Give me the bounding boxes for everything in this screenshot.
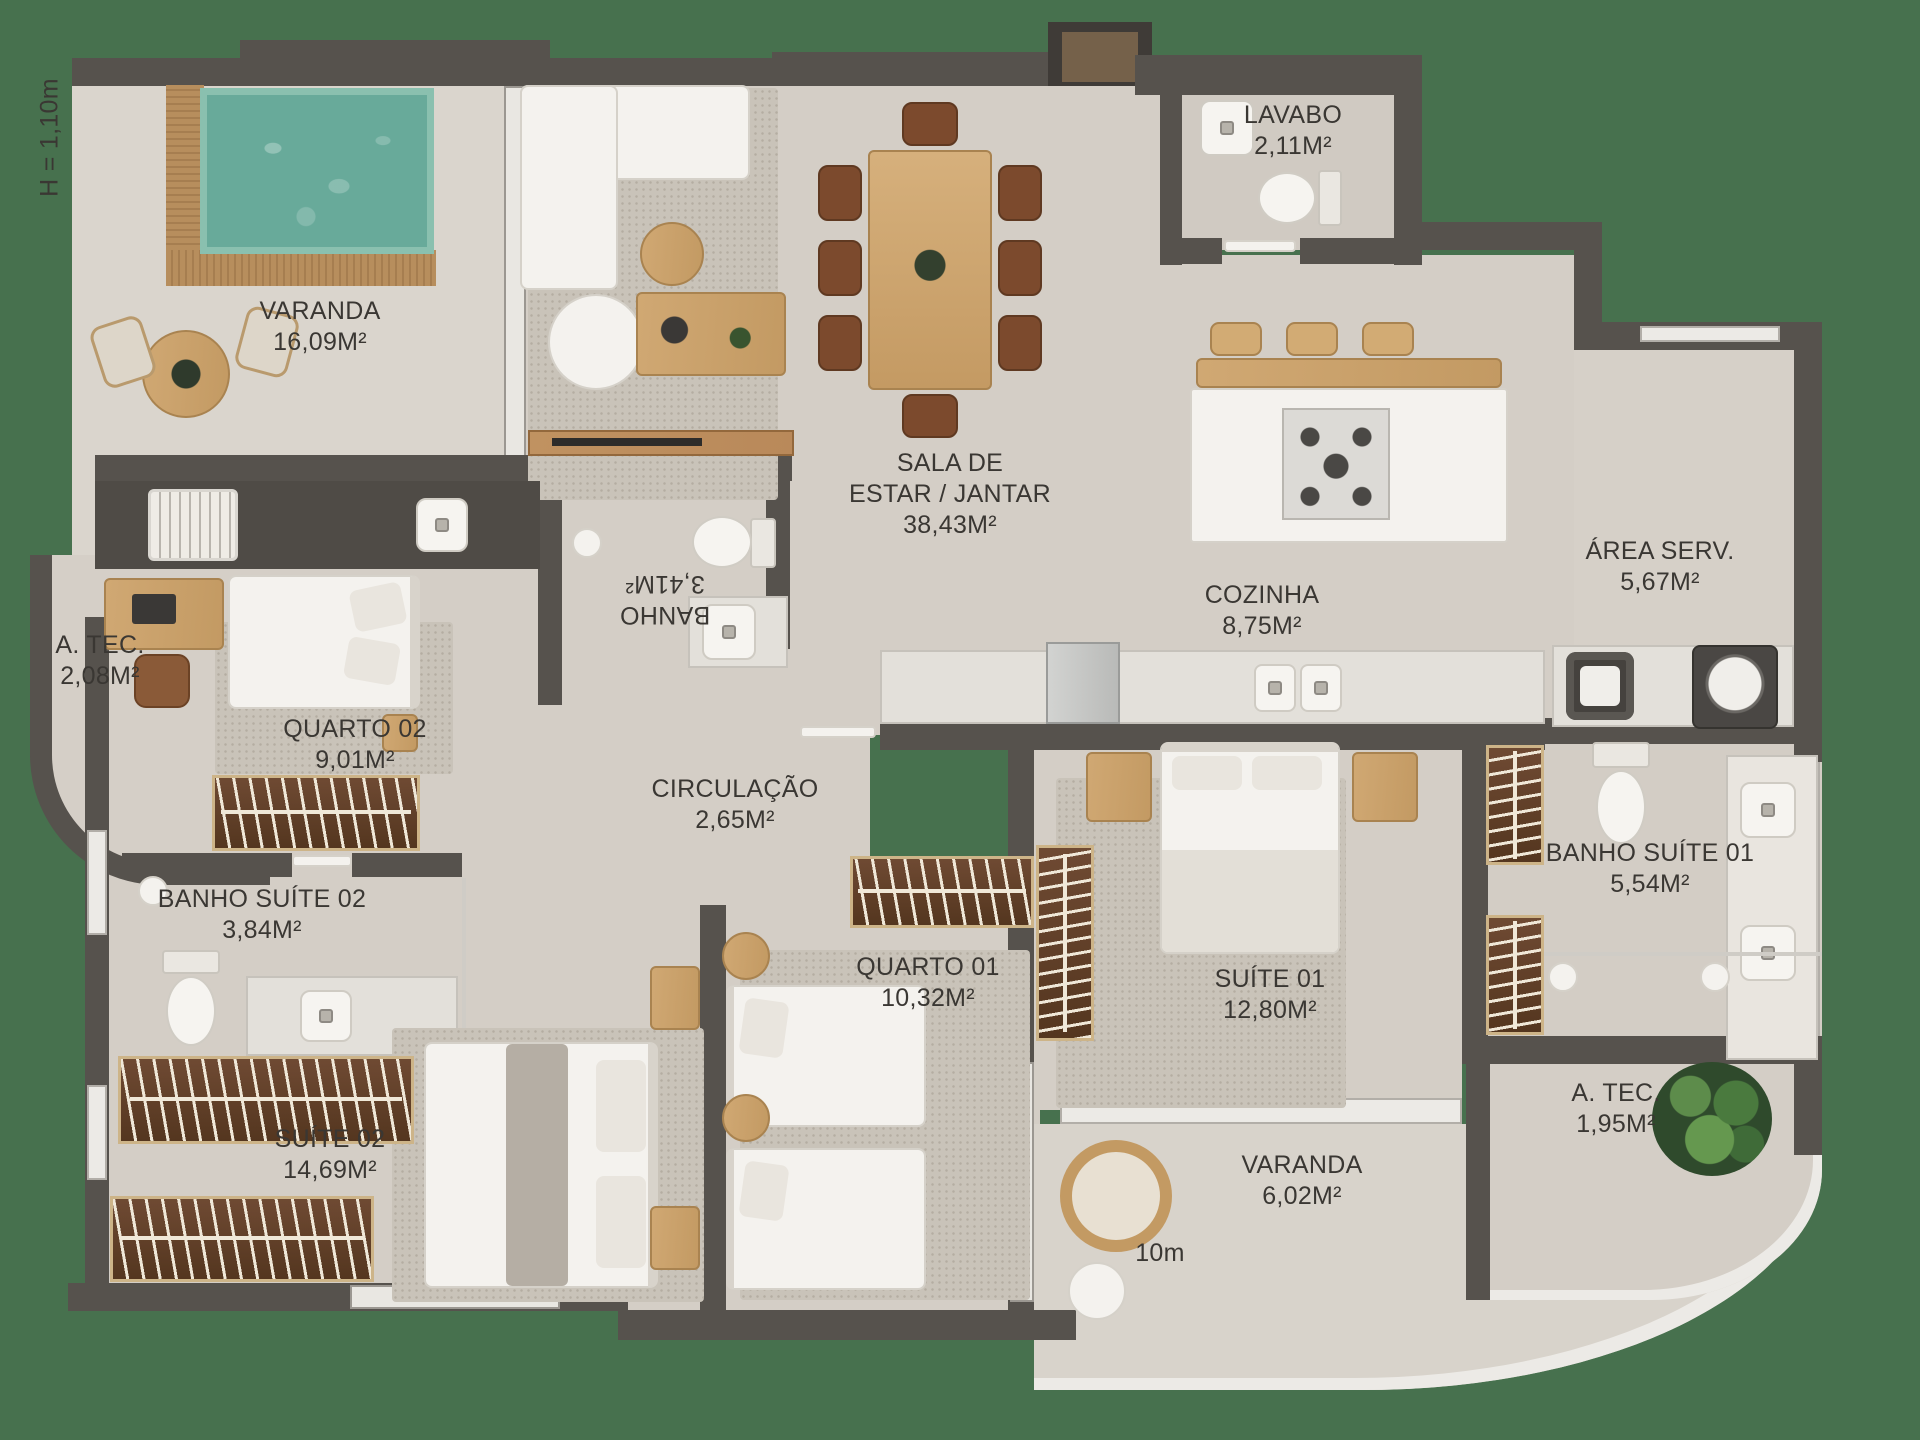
room-label-banho-suite02: BANHO SUÍTE 02 3,84M² — [112, 884, 412, 946]
suite01-pillow — [1252, 756, 1322, 790]
room-name: QUARTO 02 — [205, 714, 505, 745]
sofa-chaise — [520, 85, 618, 290]
room-name: SUÍTE 02 — [180, 1124, 480, 1155]
fridge — [1046, 642, 1120, 724]
niche-sink — [416, 498, 468, 552]
washing-machine — [1692, 645, 1778, 729]
room-area: 1,95M² — [1466, 1109, 1766, 1140]
room-label-atec-right: A. TEC. 1,95M² — [1466, 1078, 1766, 1140]
room-area: 5,54M² — [1500, 869, 1800, 900]
suite02-window-a — [87, 830, 107, 935]
room-area: 12,80M² — [1120, 995, 1420, 1026]
banho01-toilet-bowl — [1596, 770, 1646, 844]
banho02-door-leaf — [292, 855, 352, 867]
room-area: 14,69M² — [180, 1155, 480, 1186]
island-bar-ledge — [1196, 358, 1502, 388]
nightstand-round — [722, 1094, 770, 1142]
pool-deck-bottom — [166, 250, 436, 286]
dining-chair — [818, 165, 862, 221]
room-name: QUARTO 01 — [778, 952, 1078, 983]
dining-chair — [902, 102, 958, 146]
room-label-area-serv: ÁREA SERV. 5,67M² — [1510, 536, 1810, 598]
wall-left-outer — [85, 617, 109, 1287]
wall-banho02-north-a — [122, 853, 292, 877]
room-area: 3,84M² — [112, 915, 412, 946]
area-serv-window — [1640, 326, 1780, 342]
room-label-suite02: SUÍTE 02 14,69M² — [180, 1124, 480, 1186]
quarto01-pillow — [738, 1160, 789, 1222]
banho02-toilet-bowl — [166, 976, 216, 1046]
shower-head — [1700, 962, 1730, 992]
suite02-wardrobe-b — [110, 1196, 374, 1282]
ac-rack — [148, 489, 238, 561]
entry-mat — [1062, 32, 1138, 82]
room-name: ESTAR / JANTAR — [800, 479, 1100, 510]
room-area: 38,43M² — [800, 510, 1100, 541]
room-label-varanda-bottom: VARANDA 6,02M² — [1152, 1150, 1452, 1212]
room-area: 6,02M² — [1152, 1181, 1452, 1212]
laundry-sink-basin — [1580, 666, 1620, 706]
room-area: 8,75M² — [1112, 611, 1412, 642]
room-name: VARANDA — [1152, 1150, 1452, 1181]
dining-chair — [902, 394, 958, 438]
banho02-sink — [300, 990, 352, 1042]
bar-stool — [1286, 322, 1338, 356]
banho02-toilet-tank — [162, 950, 220, 974]
suite01-blanket — [1162, 850, 1338, 952]
dining-chair — [998, 315, 1042, 371]
floor-plan-canvas: VARANDA 16,09M² SALA DE ESTAR / JANTAR 3… — [0, 0, 1920, 1440]
room-name: BANHO — [595, 599, 735, 630]
wall-top-mid — [772, 52, 1062, 86]
room-label-atec-left: A. TEC. 2,08M² — [10, 630, 190, 692]
laptop — [132, 594, 176, 624]
room-area: 2,08M² — [10, 661, 190, 692]
room-area: 16,09M² — [170, 327, 470, 358]
room-name: VARANDA — [170, 296, 470, 327]
coffee-table-round — [548, 294, 644, 390]
scale-annotation: 10m — [1100, 1238, 1220, 1269]
suite02-pillow — [596, 1060, 646, 1152]
wall-lavabo-top — [1135, 55, 1422, 95]
room-name: SUÍTE 01 — [1120, 964, 1420, 995]
banho01-toilet-tank — [1592, 742, 1650, 768]
shower-head — [1548, 962, 1578, 992]
room-area: 2,11M² — [1213, 131, 1373, 162]
shower-head — [572, 528, 602, 558]
room-label-circulacao: CIRCULAÇÃO 2,65M² — [585, 774, 885, 836]
wall-parapet-step — [240, 40, 550, 60]
wall-right-outer-b — [1794, 1060, 1822, 1155]
banho01-shower-glass — [1500, 952, 1822, 956]
room-name: CIRCULAÇÃO — [585, 774, 885, 805]
room-name: A. TEC. — [10, 630, 190, 661]
banho-toilet-tank — [750, 518, 776, 568]
banho-toilet-bowl — [692, 516, 752, 568]
height-annotation: H = 1,10m — [35, 53, 66, 223]
bar-stool — [1362, 322, 1414, 356]
cooktop — [1282, 408, 1390, 520]
quarto02-wardrobe — [212, 775, 420, 851]
wall-lavabo-south-b — [1300, 238, 1422, 264]
coffee-table-wood — [636, 292, 786, 376]
room-area: 2,65M² — [585, 805, 885, 836]
room-label-cozinha: COZINHA 8,75M² — [1112, 580, 1412, 642]
room-name: ÁREA SERV. — [1510, 536, 1810, 567]
nightstand-round — [722, 932, 770, 980]
nightstand — [650, 1206, 700, 1270]
room-label-quarto02: QUARTO 02 9,01M² — [205, 714, 505, 776]
wall-banho02-north-b — [352, 853, 462, 877]
nightstand — [1086, 752, 1152, 822]
lavabo-toilet-tank — [1318, 170, 1342, 226]
banho01-sink-a — [1740, 782, 1796, 838]
suite01-pillow — [1172, 756, 1242, 790]
room-area: 3,41M² — [595, 568, 735, 599]
suite02-window-b — [87, 1085, 107, 1180]
tv — [552, 438, 702, 446]
room-label-varanda-top: VARANDA 16,09M² — [170, 296, 470, 358]
kitchen-sink-right — [1300, 664, 1342, 712]
room-name: BANHO SUÍTE 01 — [1500, 838, 1800, 869]
room-label-banho: BANHO 3,41M² — [595, 568, 735, 630]
wall-suite01-banho01 — [1462, 718, 1488, 1064]
lavabo-toilet-bowl — [1258, 172, 1316, 224]
varanda-side-table — [1068, 1262, 1126, 1320]
dining-chair — [998, 165, 1042, 221]
room-area: 9,01M² — [205, 745, 505, 776]
wall-quarto01-south — [618, 1310, 1076, 1340]
room-label-suite01: SUÍTE 01 12,80M² — [1120, 964, 1420, 1026]
wall-top-left — [72, 58, 772, 86]
room-label-lavabo: LAVABO 2,11M² — [1213, 100, 1373, 162]
dining-chair — [818, 240, 862, 296]
nightstand — [1352, 752, 1418, 822]
room-name: COZINHA — [1112, 580, 1412, 611]
pool — [200, 88, 434, 254]
room-name: A. TEC. — [1466, 1078, 1766, 1109]
side-table-wood — [640, 222, 704, 286]
quarto01-wardrobe — [850, 856, 1034, 928]
dining-chair — [818, 315, 862, 371]
dining-chair — [998, 240, 1042, 296]
room-label-banho-suite01: BANHO SUÍTE 01 5,54M² — [1500, 838, 1800, 900]
wall-lavabo-right — [1394, 55, 1422, 265]
kitchen-sink-left — [1254, 664, 1296, 712]
dining-table — [868, 150, 992, 390]
lavabo-door-leaf — [1224, 240, 1296, 252]
room-name: LAVABO — [1213, 100, 1373, 131]
room-area: 5,67M² — [1510, 567, 1810, 598]
room-area: 10,32M² — [778, 983, 1078, 1014]
nightstand — [650, 966, 700, 1030]
quarto02-pillow — [343, 636, 402, 686]
quarto01-door-leaf — [800, 726, 876, 738]
wall-banho-left — [538, 481, 562, 705]
suite01-closet-b — [1486, 915, 1544, 1035]
wall-lavabo-south-a — [1160, 238, 1222, 264]
suite02-blanket — [506, 1044, 568, 1286]
kitchen-counter — [880, 650, 1545, 724]
room-label-quarto01: QUARTO 01 10,32M² — [778, 952, 1078, 1014]
room-name: BANHO SUÍTE 02 — [112, 884, 412, 915]
suite02-pillow — [596, 1176, 646, 1268]
room-label-sala: SALA DE ESTAR / JANTAR 38,43M² — [800, 448, 1100, 541]
room-name: SALA DE — [800, 448, 1100, 479]
bar-stool — [1210, 322, 1262, 356]
